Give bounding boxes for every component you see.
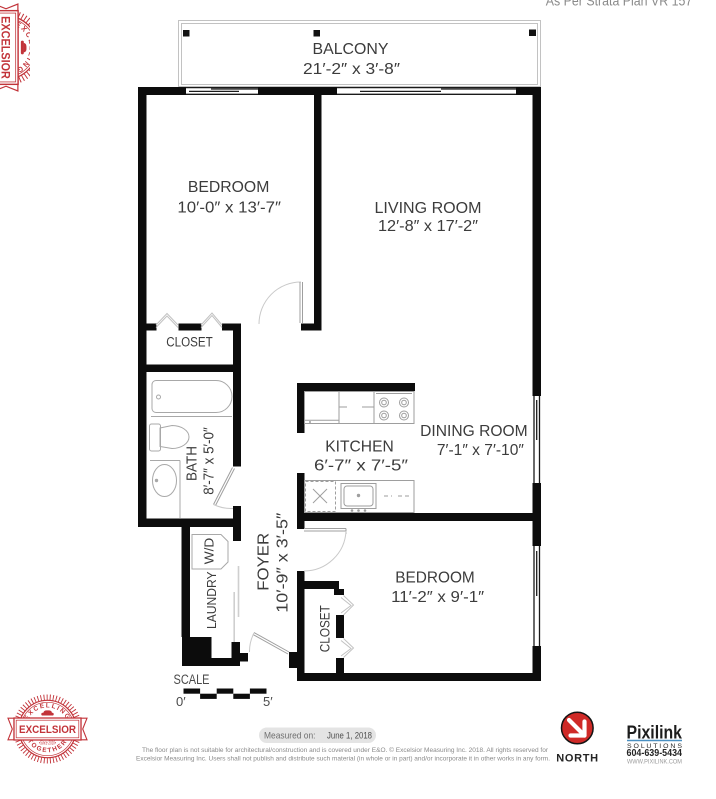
svg-text:SCALE: SCALE — [174, 672, 210, 687]
svg-text:NORTH: NORTH — [556, 753, 599, 765]
svg-text:As Per Strata Plan VR 157: As Per Strata Plan VR 157 — [546, 0, 693, 9]
svg-text:Excelsior Measuring Inc. Users: Excelsior Measuring Inc. Users shall not… — [136, 756, 550, 763]
svg-text:Measured on:: Measured on: — [264, 731, 316, 742]
svg-text:CLOSET: CLOSET — [318, 605, 333, 652]
svg-text:LAUNDRY: LAUNDRY — [204, 571, 219, 629]
svg-text:WWW.PIXILINK.COM: WWW.PIXILINK.COM — [627, 759, 682, 766]
svg-text:21′-2″ x 3′-8″: 21′-2″ x 3′-8″ — [303, 61, 400, 78]
svg-text:June 1, 2018: June 1, 2018 — [327, 731, 372, 742]
svg-text:10′-9″ x 3′-5″: 10′-9″ x 3′-5″ — [275, 512, 292, 612]
svg-text:5′: 5′ — [263, 694, 273, 709]
svg-text:BALCONY: BALCONY — [313, 41, 389, 58]
svg-text:12′-8″ x 17′-2″: 12′-8″ x 17′-2″ — [378, 218, 478, 235]
svg-text:CLOSET: CLOSET — [166, 334, 213, 349]
svg-text:6′-7″ x 7′-5″: 6′-7″ x 7′-5″ — [314, 458, 408, 475]
svg-text:DINING ROOM: DINING ROOM — [420, 423, 528, 440]
svg-text:7′-1″ x 7′-10″: 7′-1″ x 7′-10″ — [437, 442, 524, 459]
svg-text:LIVING ROOM: LIVING ROOM — [375, 200, 482, 217]
svg-text:FOYER: FOYER — [256, 533, 273, 591]
svg-text:0′: 0′ — [176, 694, 186, 709]
svg-text:Pixilink: Pixilink — [627, 722, 683, 743]
svg-text:BEDROOM: BEDROOM — [395, 569, 475, 586]
svg-text:8′-7″ x 5′-0″: 8′-7″ x 5′-0″ — [202, 427, 218, 495]
svg-text:BEDROOM: BEDROOM — [188, 179, 270, 196]
svg-text:The floor plan is not suitable: The floor plan is not suitable for archi… — [142, 746, 549, 754]
svg-text:604-639-5434: 604-639-5434 — [627, 748, 683, 759]
svg-text:BATH: BATH — [185, 446, 201, 481]
svg-text:W/D: W/D — [202, 538, 217, 565]
svg-text:11′-2″ x 9′-1″: 11′-2″ x 9′-1″ — [391, 589, 484, 606]
svg-text:KITCHEN: KITCHEN — [325, 439, 394, 456]
svg-text:10′-0″ x 13′-7″: 10′-0″ x 13′-7″ — [177, 200, 281, 217]
